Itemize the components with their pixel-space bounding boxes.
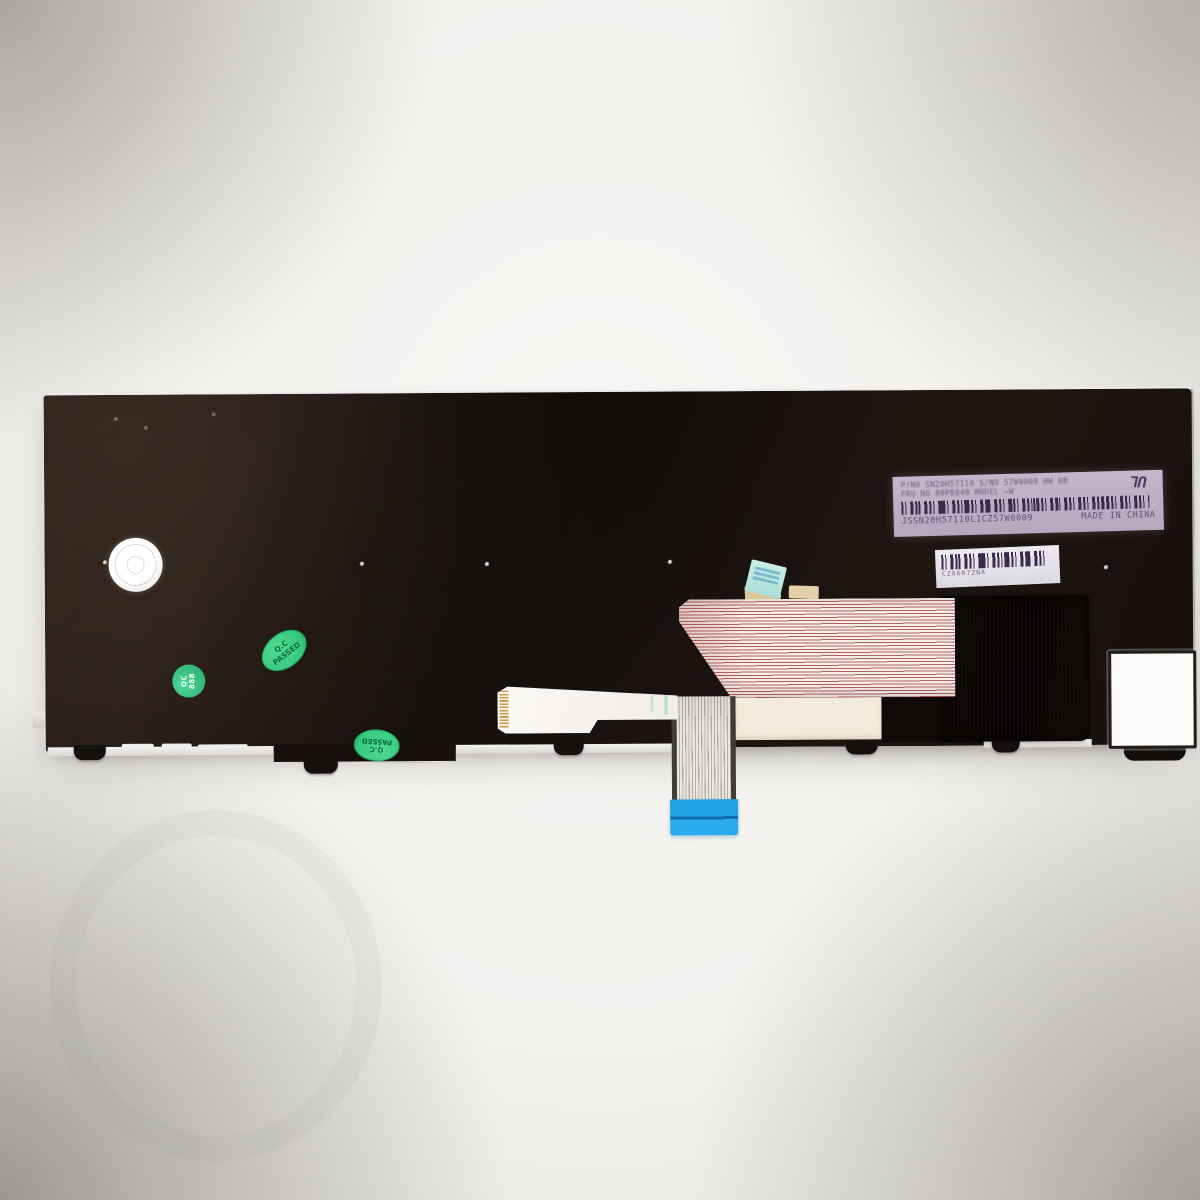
- product-label: P/NO SN20H57110 S/NO 57W0009 HW 0B FRU N…: [892, 470, 1164, 537]
- edge-slot: [198, 744, 248, 748]
- serial-barcode-sticker: CZ6607ZNA: [935, 545, 1060, 588]
- mounting-tab: [554, 742, 584, 755]
- qc-oval-line1: Q.C: [369, 745, 383, 754]
- edge-slot: [122, 744, 154, 749]
- screw-dot: [1104, 565, 1110, 571]
- label-origin: MADE IN CHINA: [1081, 510, 1156, 522]
- keyboard-ribbon-cable: [677, 598, 956, 699]
- edge-slot: [162, 743, 192, 748]
- surface-speck: [212, 412, 216, 416]
- ribbon-connector-blue-tab: [670, 799, 738, 835]
- surface-speck: [114, 417, 118, 421]
- qc-round-sticker: QC 888: [172, 664, 205, 697]
- ul-certification-mark: UL: [1130, 472, 1147, 490]
- trackpoint-cable: [497, 686, 677, 735]
- keyboard-backplate: QC 888 Q.C PASSED Q.C PASSED P/NO SN20H5…: [42, 386, 1196, 751]
- photo-background: { "product_label": { "line1": "P/NO SN20…: [0, 0, 1200, 1200]
- date-code-wheel-sticker: [108, 538, 162, 592]
- mounting-tab: [304, 760, 338, 774]
- screw-dot: [485, 562, 491, 568]
- qc-passed-sticker: Q.C PASSED: [254, 621, 315, 679]
- screw-dot: [360, 561, 366, 567]
- side-bracket-notch: [33, 711, 46, 728]
- photo-watermark: [50, 810, 382, 1162]
- qc-round-line2: 888: [188, 673, 196, 689]
- cable-contacts: [499, 691, 508, 729]
- cable-print-mark: [664, 693, 667, 715]
- mylar-patch: [941, 595, 1090, 742]
- mounting-tab: [846, 740, 878, 754]
- screw-dot: [668, 560, 674, 566]
- mounting-tab: [74, 745, 106, 760]
- kapton-tape: [789, 585, 819, 599]
- cable-print-mark: [650, 696, 653, 712]
- backplate-window: [1108, 650, 1197, 749]
- ribbon-cable-tail: [671, 696, 736, 801]
- qc-oval-line2: PASSED: [362, 736, 393, 746]
- surface-speck: [144, 426, 148, 430]
- label-serial: JSSN20H57110L1CZ57W0009: [902, 513, 1034, 527]
- screw-dot: [103, 560, 109, 566]
- backing-plate-cutout: [735, 696, 881, 740]
